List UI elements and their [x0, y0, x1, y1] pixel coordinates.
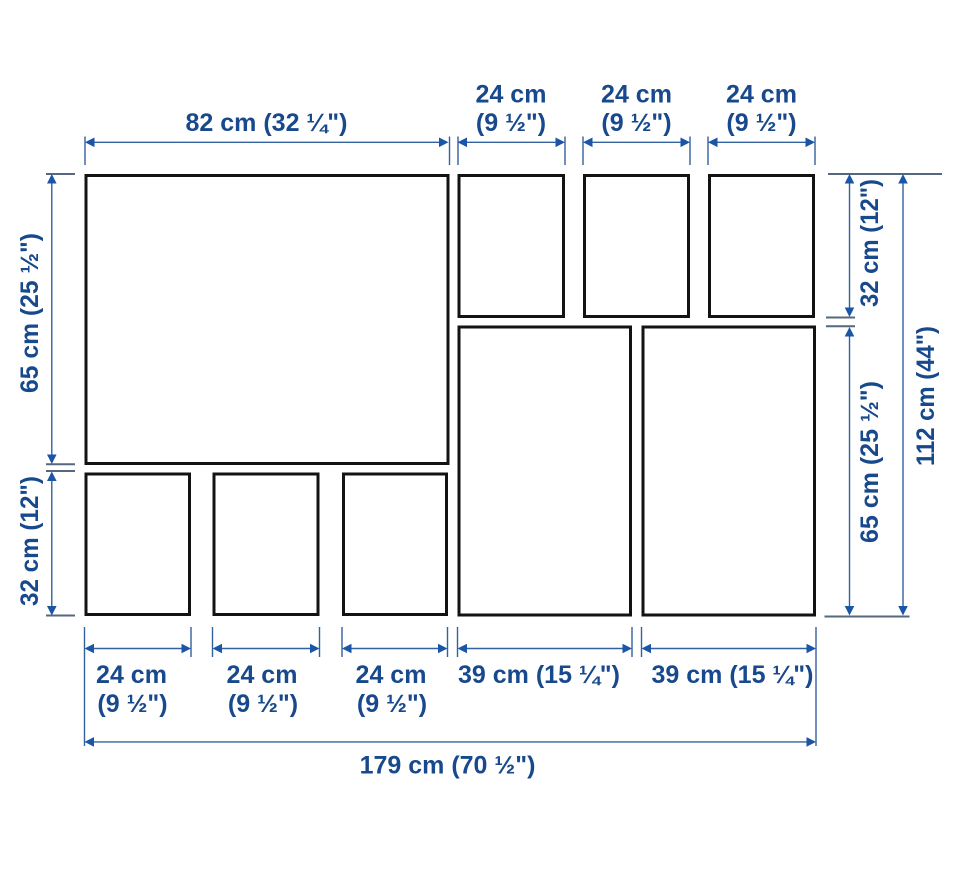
- svg-text:39 cm (15 ¼"): 39 cm (15 ¼"): [458, 661, 620, 689]
- svg-text:24 cm: 24 cm: [356, 661, 427, 689]
- svg-text:24 cm: 24 cm: [96, 661, 167, 689]
- svg-text:65 cm (25 ½"): 65 cm (25 ½"): [856, 381, 884, 543]
- svg-text:65 cm (25 ½"): 65 cm (25 ½"): [16, 233, 44, 393]
- svg-text:112 cm (44"): 112 cm (44"): [912, 326, 940, 466]
- svg-text:(9 ½"): (9 ½"): [357, 690, 427, 718]
- svg-text:(9 ½"): (9 ½"): [228, 690, 298, 718]
- svg-text:(9 ½"): (9 ½"): [726, 109, 796, 137]
- svg-text:179 cm (70 ½"): 179 cm (70 ½"): [360, 752, 536, 780]
- svg-text:32 cm (12"): 32 cm (12"): [16, 476, 44, 606]
- svg-text:24 cm: 24 cm: [726, 81, 797, 109]
- svg-text:(9 ½"): (9 ½"): [476, 109, 546, 137]
- svg-text:(9 ½"): (9 ½"): [97, 690, 167, 718]
- svg-text:24 cm: 24 cm: [227, 661, 298, 689]
- svg-text:32 cm (12"): 32 cm (12"): [856, 179, 884, 307]
- svg-text:82 cm (32 ¼"): 82 cm (32 ¼"): [186, 109, 348, 137]
- svg-text:24 cm: 24 cm: [476, 81, 547, 109]
- svg-text:39 cm (15 ¼"): 39 cm (15 ¼"): [652, 661, 814, 689]
- svg-text:24 cm: 24 cm: [601, 81, 672, 109]
- svg-text:(9 ½"): (9 ½"): [601, 109, 671, 137]
